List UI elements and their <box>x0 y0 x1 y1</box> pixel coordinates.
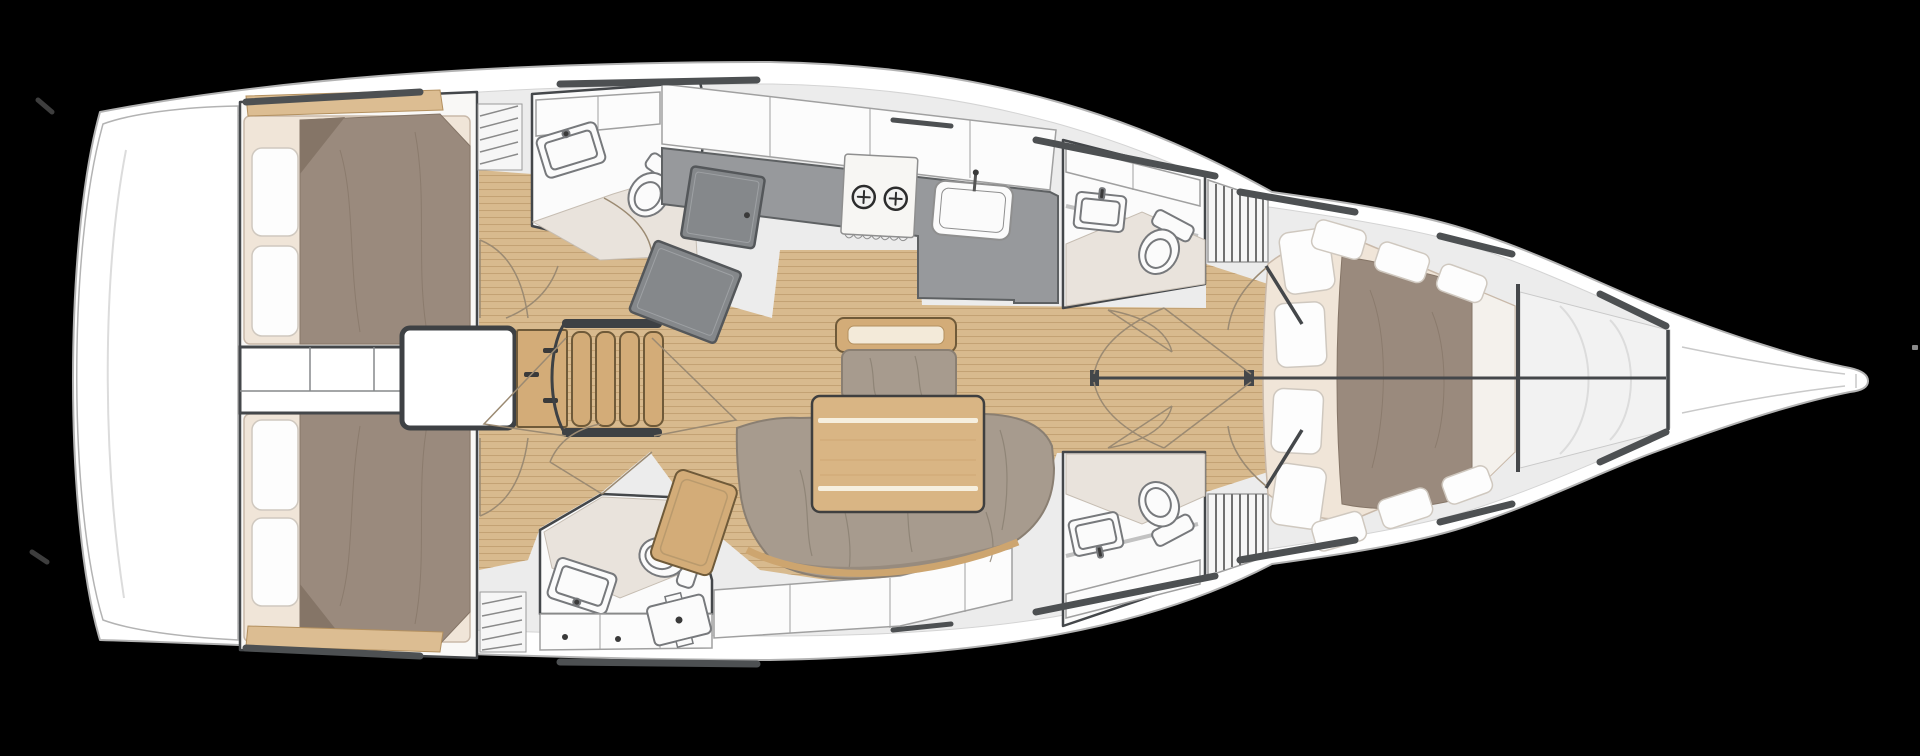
pillow <box>252 148 298 236</box>
pillow <box>252 420 298 510</box>
aft-cabin-port <box>240 90 477 347</box>
burner <box>852 185 875 208</box>
bowsprit-mark <box>1912 345 1918 350</box>
pillow <box>1271 388 1324 455</box>
duvet <box>300 114 470 344</box>
salon-table <box>812 396 984 512</box>
refrigerator <box>681 166 765 249</box>
pillow <box>252 518 298 606</box>
pillow <box>1274 301 1327 368</box>
step <box>572 332 591 426</box>
step <box>620 332 639 426</box>
companionway-box <box>402 328 515 428</box>
settee-bench <box>836 318 956 400</box>
louvered-locker <box>478 104 522 170</box>
stove <box>841 154 918 241</box>
canvas <box>0 0 1920 756</box>
yacht-floor-plan <box>0 0 1920 756</box>
louvered-locker <box>480 592 526 652</box>
toe-rail <box>560 80 757 84</box>
step <box>596 332 615 426</box>
toe-rail <box>560 662 757 664</box>
pillow <box>1269 462 1327 530</box>
duvet <box>300 414 470 644</box>
burner <box>884 187 907 210</box>
aft-cabin-starboard <box>240 410 477 658</box>
pillow <box>252 246 298 336</box>
engine-compartment <box>240 347 402 413</box>
